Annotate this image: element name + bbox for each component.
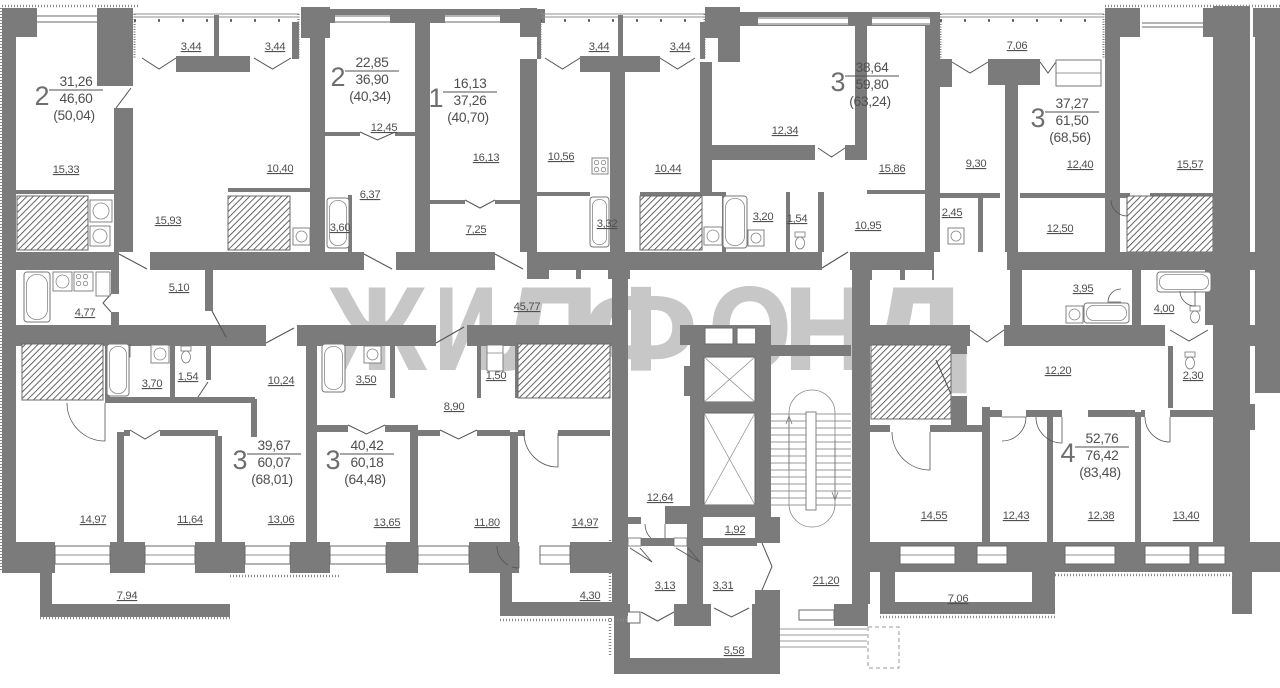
svg-text:7,25: 7,25 (466, 224, 487, 236)
svg-text:46,60: 46,60 (59, 91, 93, 106)
svg-text:21,20: 21,20 (813, 575, 840, 587)
svg-text:12,50: 12,50 (1047, 223, 1074, 235)
svg-text:3: 3 (1030, 103, 1045, 133)
svg-text:1: 1 (428, 83, 443, 113)
svg-text:14,97: 14,97 (80, 514, 107, 526)
svg-text:12,38: 12,38 (1088, 510, 1115, 522)
svg-text:2,30: 2,30 (1183, 370, 1204, 382)
svg-text:3,13: 3,13 (655, 580, 676, 592)
svg-text:12,45: 12,45 (371, 122, 398, 134)
svg-text:3,50: 3,50 (356, 374, 377, 386)
svg-text:13,40: 13,40 (1173, 510, 1200, 522)
svg-text:13,65: 13,65 (374, 517, 401, 529)
svg-text:3: 3 (830, 67, 845, 97)
svg-text:12,43: 12,43 (1003, 510, 1030, 522)
svg-text:10,44: 10,44 (655, 163, 682, 175)
svg-text:4,77: 4,77 (75, 307, 96, 319)
svg-text:3,95: 3,95 (1073, 283, 1094, 295)
svg-text:8,90: 8,90 (444, 401, 465, 413)
svg-text:61,50: 61,50 (1055, 113, 1089, 128)
svg-text:13,06: 13,06 (268, 514, 295, 526)
svg-text:(40,70): (40,70) (447, 110, 489, 125)
svg-text:38,64: 38,64 (855, 60, 889, 75)
svg-text:3,20: 3,20 (753, 211, 774, 223)
svg-text:2: 2 (34, 81, 49, 111)
svg-text:22,85: 22,85 (355, 55, 389, 70)
svg-text:1,92: 1,92 (725, 524, 746, 536)
svg-text:10,24: 10,24 (268, 375, 295, 387)
svg-text:(83,48): (83,48) (1079, 465, 1121, 480)
svg-text:45,77: 45,77 (514, 301, 541, 313)
svg-text:1,54: 1,54 (178, 371, 199, 383)
svg-text:11,64: 11,64 (177, 514, 203, 526)
svg-text:40,42: 40,42 (350, 438, 383, 453)
svg-text:(63,24): (63,24) (849, 94, 891, 109)
svg-text:12,34: 12,34 (772, 125, 799, 137)
svg-text:15,93: 15,93 (155, 215, 182, 227)
svg-text:12,40: 12,40 (1067, 159, 1094, 171)
svg-text:4,30: 4,30 (580, 590, 601, 602)
svg-text:6,37: 6,37 (360, 189, 381, 201)
svg-text:2: 2 (330, 62, 345, 92)
svg-text:3,44: 3,44 (589, 41, 610, 53)
svg-text:3,44: 3,44 (265, 41, 286, 53)
svg-text:4,00: 4,00 (1154, 303, 1175, 315)
svg-text:1,50: 1,50 (486, 370, 507, 382)
svg-text:4: 4 (1060, 438, 1075, 468)
svg-text:59,80: 59,80 (855, 77, 889, 92)
svg-text:3,32: 3,32 (597, 218, 618, 230)
svg-text:16,13: 16,13 (473, 152, 500, 164)
svg-text:10,40: 10,40 (267, 163, 294, 175)
svg-text:7,94: 7,94 (117, 590, 138, 602)
svg-text:9,30: 9,30 (966, 158, 987, 170)
svg-text:3,44: 3,44 (670, 41, 691, 53)
svg-text:60,07: 60,07 (257, 455, 290, 470)
svg-text:3,31: 3,31 (713, 580, 734, 592)
svg-text:60,18: 60,18 (350, 455, 384, 470)
svg-text:(68,56): (68,56) (1049, 130, 1091, 145)
svg-text:14,97: 14,97 (572, 517, 599, 529)
svg-text:37,26: 37,26 (453, 93, 487, 108)
svg-text:(50,04): (50,04) (53, 108, 95, 123)
svg-text:7,06: 7,06 (1007, 40, 1028, 52)
svg-text:14,55: 14,55 (921, 510, 948, 522)
svg-text:3,44: 3,44 (181, 41, 202, 53)
svg-text:11,80: 11,80 (474, 517, 500, 529)
svg-text:10,56: 10,56 (548, 151, 575, 163)
svg-text:(68,01): (68,01) (251, 472, 293, 487)
svg-text:(40,34): (40,34) (349, 89, 391, 104)
svg-text:5,10: 5,10 (169, 282, 190, 294)
svg-text:37,27: 37,27 (1055, 96, 1088, 111)
svg-text:(64,48): (64,48) (344, 472, 386, 487)
svg-text:15,57: 15,57 (1177, 159, 1204, 171)
svg-text:52,76: 52,76 (1085, 431, 1119, 446)
svg-text:15,86: 15,86 (879, 163, 906, 175)
svg-text:3: 3 (325, 445, 340, 475)
svg-text:16,13: 16,13 (453, 76, 487, 91)
svg-text:10,95: 10,95 (855, 220, 882, 232)
svg-text:39,67: 39,67 (257, 438, 290, 453)
svg-text:12,64: 12,64 (647, 492, 674, 504)
svg-text:3,60: 3,60 (330, 222, 351, 234)
svg-text:5,58: 5,58 (724, 645, 745, 657)
svg-text:12,20: 12,20 (1045, 365, 1072, 377)
svg-text:36,90: 36,90 (355, 72, 389, 87)
svg-text:3,70: 3,70 (142, 378, 163, 390)
svg-text:7,06: 7,06 (948, 593, 969, 605)
svg-text:76,42: 76,42 (1085, 448, 1118, 463)
svg-text:31,26: 31,26 (59, 74, 93, 89)
svg-text:15,33: 15,33 (53, 164, 80, 176)
svg-text:1,54: 1,54 (787, 213, 808, 225)
svg-text:2,45: 2,45 (942, 207, 963, 219)
svg-text:3: 3 (232, 445, 247, 475)
